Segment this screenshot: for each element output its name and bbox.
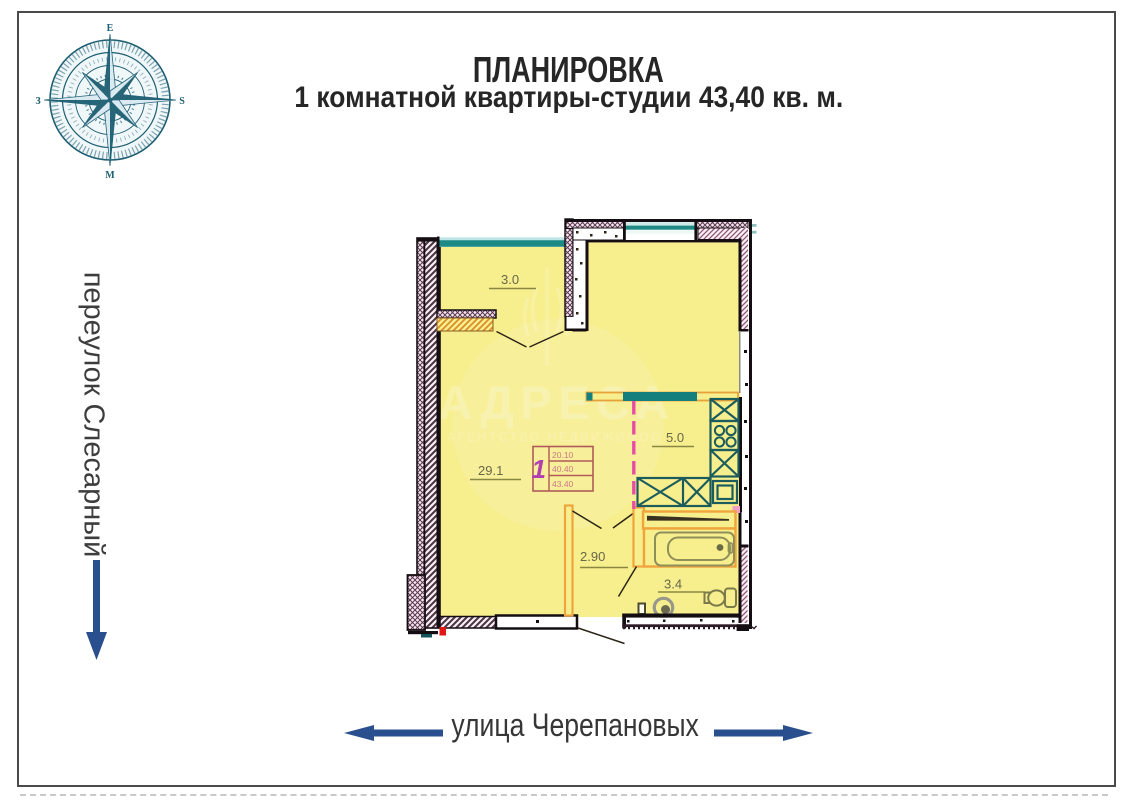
svg-text:40.40: 40.40 [552,464,574,474]
svg-text:1: 1 [532,454,546,484]
svg-text:5.0: 5.0 [666,430,684,445]
svg-text:43.40: 43.40 [552,479,574,489]
svg-text:АДРЕСА: АДРЕСА [438,376,676,429]
svg-text:АГЕНТСТВО НЕДВИЖИМОС: АГЕНТСТВО НЕДВИЖИМОС [447,430,663,444]
svg-text:3.0: 3.0 [501,272,519,287]
svg-text:2.90: 2.90 [580,549,605,564]
svg-text:3.4: 3.4 [664,577,682,592]
svg-text:М: М [105,170,115,181]
svg-text:29.1: 29.1 [478,463,503,478]
svg-text:Е: Е [107,23,114,34]
svg-text:20.10: 20.10 [552,450,574,460]
